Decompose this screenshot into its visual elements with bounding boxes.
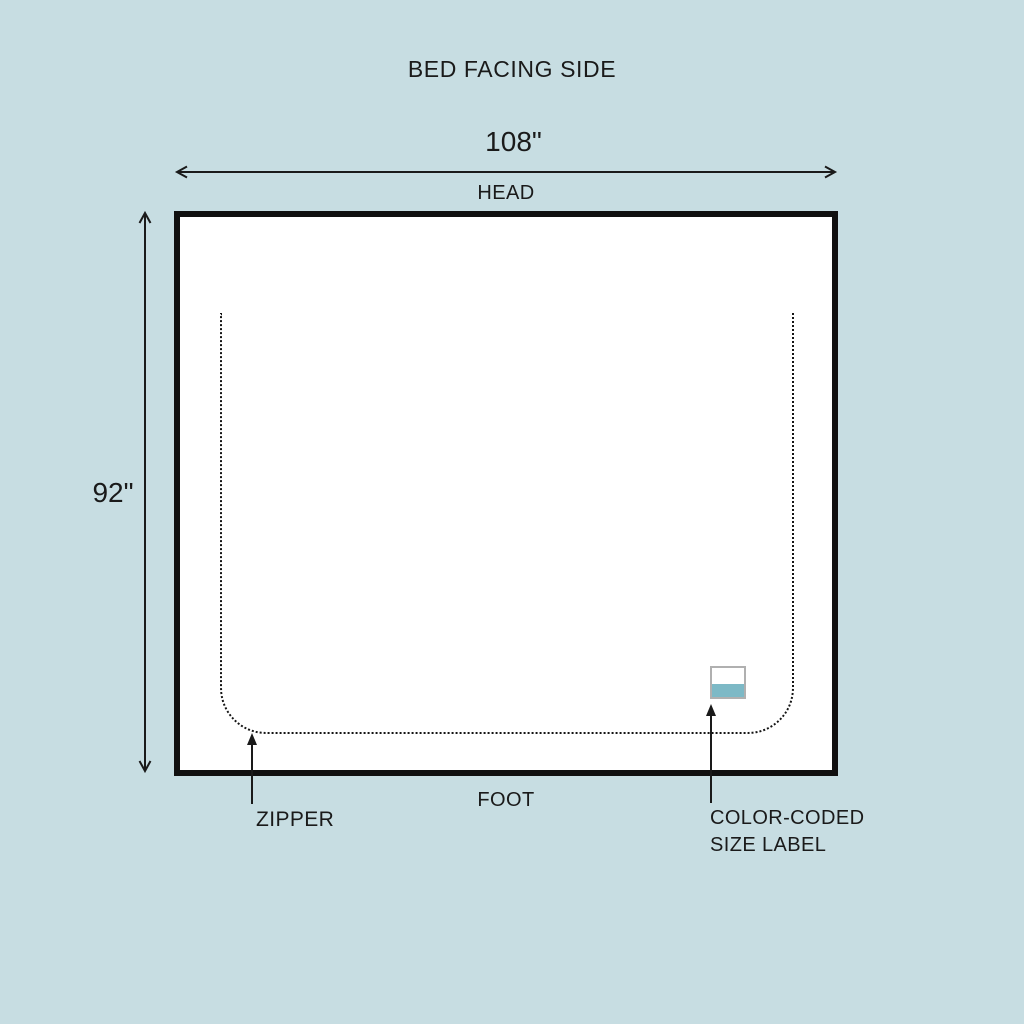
height-dimension-label: 92": [85, 477, 141, 509]
stitch-dotted-line: [220, 313, 794, 734]
size-label-caption: COLOR-CODED SIZE LABEL: [710, 805, 864, 859]
width-dimension-label: 108": [0, 126, 1024, 158]
size-label-color-stripe: [712, 684, 744, 697]
color-coded-size-label-swatch: [710, 666, 746, 699]
width-dimension-arrow-icon: [172, 164, 840, 180]
size-label-caption-line2: SIZE LABEL: [710, 832, 864, 859]
size-label-caption-line1: COLOR-CODED: [710, 805, 864, 832]
head-edge-label: HEAD: [174, 182, 838, 205]
diagram-title: BED FACING SIDE: [0, 56, 1024, 83]
